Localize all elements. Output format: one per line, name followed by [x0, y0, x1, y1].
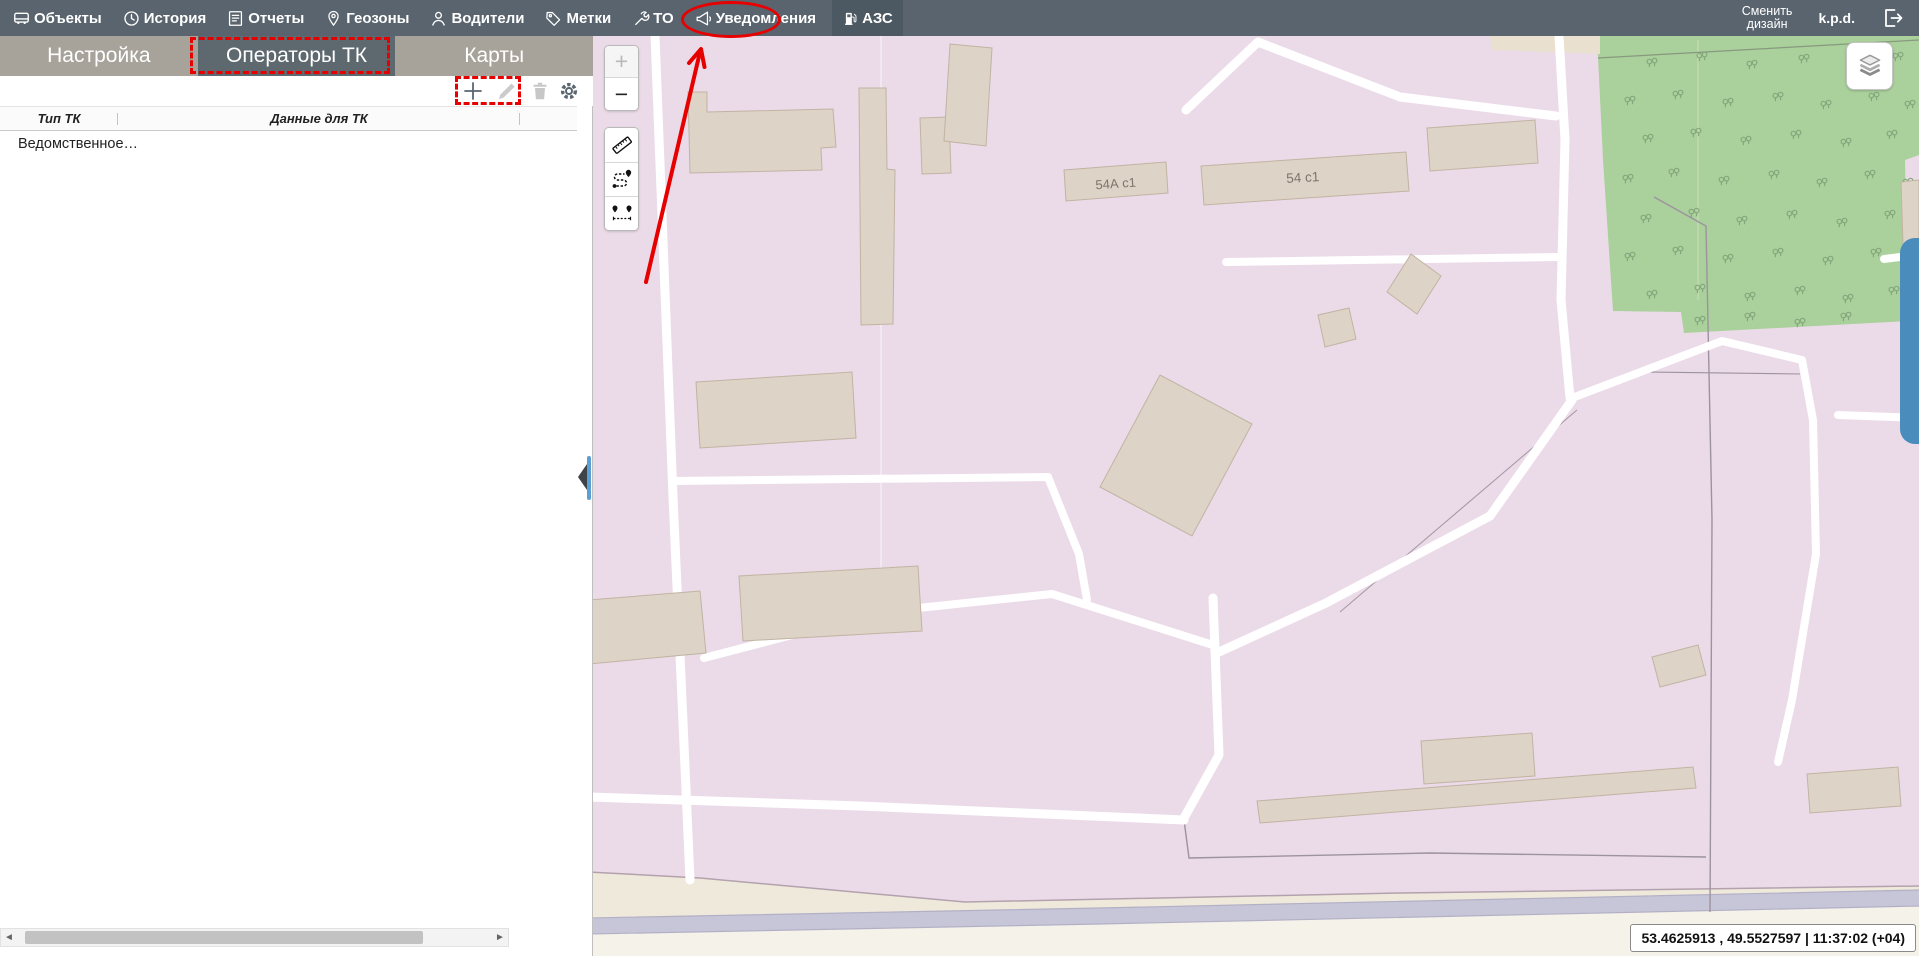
scroll-left-arrow[interactable]: ◄: [3, 932, 15, 944]
driver-icon: [429, 9, 448, 28]
panel-collapse-handle[interactable]: [577, 452, 593, 504]
nav-label: Отчеты: [248, 10, 304, 27]
nav-item-objects[interactable]: Объекты: [8, 0, 106, 36]
nav-item-maintenance[interactable]: ТО: [627, 0, 677, 36]
distance-tool-button[interactable]: [605, 196, 638, 230]
nav-label: Объекты: [34, 10, 102, 27]
nav-item-history[interactable]: История: [118, 0, 211, 36]
nav-label: История: [144, 10, 207, 27]
tag-icon: [544, 9, 563, 28]
nav-item-reports[interactable]: Отчеты: [222, 0, 308, 36]
nav-label: Метки: [566, 10, 611, 27]
ruler-tool-button[interactable]: [605, 128, 638, 162]
tab-tk-operators[interactable]: Операторы ТК: [198, 36, 396, 76]
table-header: Тип ТК Данные для ТК: [0, 106, 577, 131]
nav-label: АЗС: [862, 10, 893, 27]
scrollbar-thumb[interactable]: [25, 931, 423, 944]
status-bar-coordinates: 53.4625913 , 49.5527597 | 11:37:02 (+04): [1630, 924, 1916, 952]
column-header-tk-data[interactable]: Данные для ТК: [118, 107, 520, 132]
clock-icon: [122, 9, 141, 28]
edit-button[interactable]: [495, 79, 519, 103]
measure-tools: [604, 127, 639, 231]
nav-item-tags[interactable]: Метки: [540, 0, 615, 36]
delete-button[interactable]: [528, 79, 552, 103]
panel-tab-bar: Настройка Операторы ТК Карты: [0, 36, 593, 76]
column-divider[interactable]: [519, 113, 520, 125]
nav-item-drivers[interactable]: Водители: [425, 0, 528, 36]
right-edge-blue-panel-handle[interactable]: [1900, 238, 1919, 444]
wrench-icon: [631, 9, 650, 28]
topbar-right-group: Сменить дизайн k.p.d.: [1742, 5, 1905, 31]
scroll-right-arrow[interactable]: ►: [494, 932, 506, 944]
nav-item-notifications[interactable]: Уведомления: [690, 0, 820, 36]
layers-button[interactable]: [1846, 42, 1893, 90]
username-label: k.p.d.: [1818, 10, 1855, 26]
zoom-in-button[interactable]: +: [605, 46, 638, 78]
left-panel: Настройка Операторы ТК Карты Тип ТК Данн…: [0, 36, 593, 956]
zoom-out-button[interactable]: −: [605, 78, 638, 110]
nav-item-fuel-stations[interactable]: АЗС: [832, 0, 903, 36]
vehicle-icon: [12, 9, 31, 28]
panel-toolbar: [0, 76, 593, 106]
horizontal-scrollbar[interactable]: ◄ ►: [0, 928, 509, 947]
top-navigation-bar: Объекты История Отчеты Геозоны Водители …: [0, 0, 1919, 36]
fuel-pump-icon: [842, 10, 859, 27]
change-design-link[interactable]: Сменить дизайн: [1742, 5, 1793, 31]
application-window: Объекты История Отчеты Геозоны Водители …: [0, 0, 1919, 956]
column-header-tk-type[interactable]: Тип ТК: [0, 107, 118, 132]
nav-label: Геозоны: [346, 10, 409, 27]
nav-item-geozones[interactable]: Геозоны: [320, 0, 413, 36]
tab-settings[interactable]: Настройка: [0, 36, 198, 76]
nav-label: ТО: [653, 10, 673, 27]
table-row[interactable]: Ведомственное…: [0, 131, 577, 158]
map-canvas[interactable]: 54А с1 54 с1: [593, 36, 1919, 956]
building-label-54: 54 с1: [1286, 169, 1320, 186]
map-area[interactable]: 54А с1 54 с1 + −: [593, 36, 1919, 956]
building-label-54a: 54А с1: [1095, 175, 1136, 193]
route-tool-button[interactable]: [605, 162, 638, 196]
megaphone-icon: [694, 9, 713, 28]
column-divider[interactable]: [117, 113, 118, 125]
geofence-icon: [324, 9, 343, 28]
gear-icon[interactable]: [557, 79, 581, 103]
add-button[interactable]: [461, 79, 485, 103]
nav-label: Уведомления: [716, 10, 816, 27]
collapse-handle-bar: [587, 456, 591, 500]
zoom-control: + −: [604, 45, 639, 111]
collapse-arrow-icon: [578, 464, 587, 490]
layers-icon: [1854, 51, 1886, 81]
distance-icon: [610, 202, 634, 226]
tab-maps[interactable]: Карты: [395, 36, 593, 76]
route-icon: [610, 168, 634, 192]
report-icon: [226, 9, 245, 28]
nav-label: Водители: [451, 10, 524, 27]
ruler-icon: [610, 133, 634, 157]
logout-icon[interactable]: [1881, 6, 1905, 30]
